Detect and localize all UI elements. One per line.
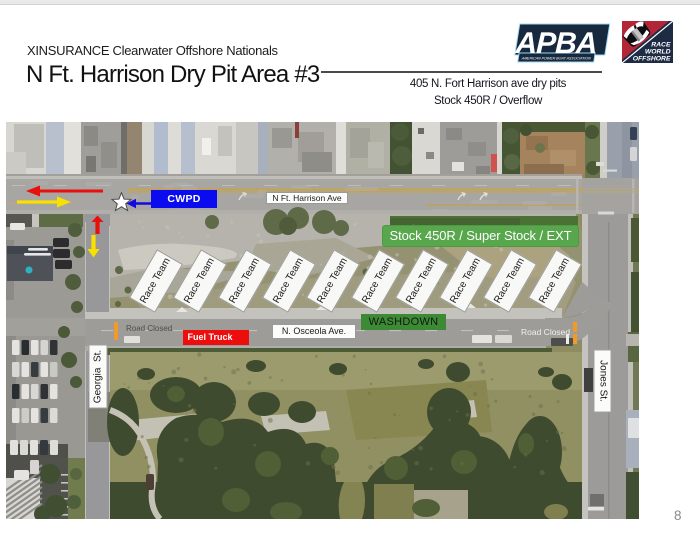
svg-text:OFFSHORE: OFFSHORE <box>633 56 671 63</box>
svg-text:APBA: APBA <box>514 27 597 60</box>
svg-text:WORLD: WORLD <box>645 49 671 56</box>
svg-text:RACE: RACE <box>651 42 671 49</box>
